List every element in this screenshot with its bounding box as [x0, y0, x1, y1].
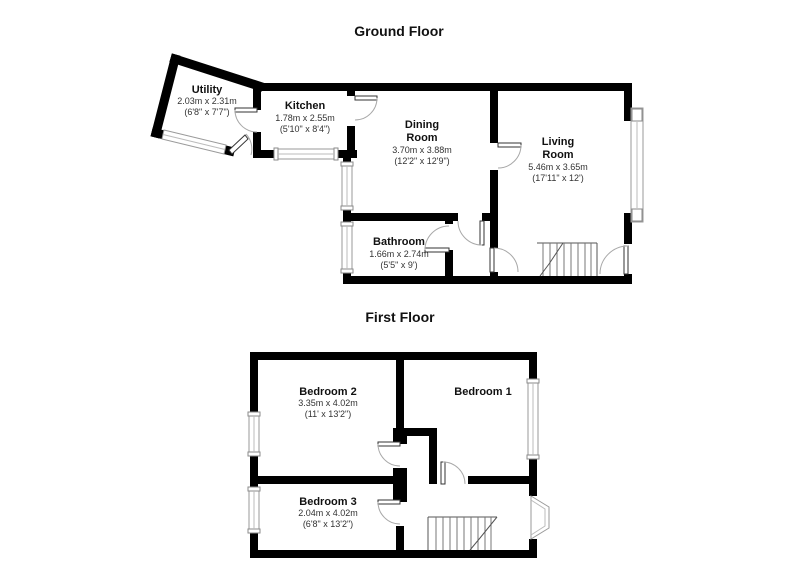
utility-back-door: [229, 134, 252, 155]
room-label-bedroom1: Bedroom 1: [454, 386, 511, 398]
bedroom2-imperial: (11' x 13'2"): [305, 409, 352, 419]
bathroom-window: [341, 222, 353, 273]
bedroom2-metric: 3.35m x 4.02m: [298, 398, 358, 408]
bedroom3-window: [248, 487, 260, 533]
bedroom1-window: [527, 379, 539, 459]
bedroom2-name: Bedroom 2: [299, 386, 356, 398]
kitchen-metric: 1.78m x 2.55m: [275, 113, 335, 123]
bedroom2-window: [248, 412, 260, 456]
living-name-line2: Room: [542, 149, 573, 161]
dining-hall-door: [458, 221, 484, 245]
living-room-window: [631, 108, 643, 222]
room-label-utility: Utility 2.03m x 2.31m (6'8" x 7'7"): [177, 84, 237, 117]
bedroom3-metric: 2.04m x 4.02m: [298, 508, 358, 518]
bedroom1-door: [441, 462, 465, 484]
kitchen-window: [274, 148, 338, 160]
ground-floor-plan: Ground Floor: [156, 23, 643, 284]
dining-name-line2: Room: [406, 132, 437, 144]
living-imperial: (17'11" x 12'): [532, 173, 584, 183]
dining-imperial: (12'2" x 12'9"): [394, 156, 449, 166]
bathroom-name: Bathroom: [373, 236, 425, 248]
hall-living-door: [490, 248, 518, 272]
ground-floor-title: Ground Floor: [354, 23, 444, 39]
utility-name: Utility: [192, 84, 223, 96]
room-label-bedroom3: Bedroom 3 2.04m x 4.02m (6'8" x 13'2"): [298, 496, 358, 529]
living-name-line1: Living: [542, 136, 574, 148]
dining-metric: 3.70m x 3.88m: [392, 145, 452, 155]
utility-metric: 2.03m x 2.31m: [177, 96, 237, 106]
first-floor-plan: First Floor: [248, 309, 549, 558]
first-floor-walls: [250, 352, 537, 558]
room-label-dining-room: Dining Room 3.70m x 3.88m (12'2" x 12'9"…: [392, 119, 452, 166]
first-floor-title: First Floor: [365, 309, 435, 325]
room-label-bathroom: Bathroom 1.66m x 2.74m (5'5" x 9'): [369, 236, 429, 270]
floor-plan-page: Ground Floor: [0, 0, 800, 582]
utility-top-wall: [175, 59, 259, 86]
utility-left-wall: [156, 59, 175, 133]
bedroom2-door: [378, 442, 400, 466]
bedroom3-name: Bedroom 3: [299, 496, 356, 508]
living-metric: 5.46m x 3.65m: [528, 162, 588, 172]
room-label-living-room: Living Room 5.46m x 3.65m (17'11" x 12'): [528, 136, 588, 183]
utility-window: [162, 130, 226, 154]
kitchen-imperial: (5'10" x 8'4"): [280, 124, 330, 134]
room-label-bedroom2: Bedroom 2 3.35m x 4.02m (11' x 13'2"): [298, 386, 358, 419]
bedroom1-name: Bedroom 1: [454, 386, 511, 398]
kitchen-name: Kitchen: [285, 100, 326, 112]
dining-name-line1: Dining: [405, 119, 439, 131]
utility-imperial: (6'8" x 7'7"): [184, 107, 229, 117]
front-door: [600, 246, 628, 274]
kitchen-dining-door: [355, 96, 377, 120]
ground-floor-stairs: [537, 243, 597, 276]
bathroom-imperial: (5'5" x 9'): [380, 260, 417, 270]
dining-room-window: [341, 162, 353, 210]
first-floor-stairs: [428, 517, 497, 550]
bay-window: [531, 496, 549, 539]
bedroom3-imperial: (6'8" x 13'2"): [303, 519, 353, 529]
bathroom-metric: 1.66m x 2.74m: [369, 249, 429, 259]
room-label-kitchen: Kitchen 1.78m x 2.55m (5'10" x 8'4"): [275, 100, 335, 134]
floor-plan-image: Ground Floor: [0, 0, 800, 582]
dining-living-door: [498, 143, 521, 168]
bedroom3-door: [378, 500, 400, 524]
